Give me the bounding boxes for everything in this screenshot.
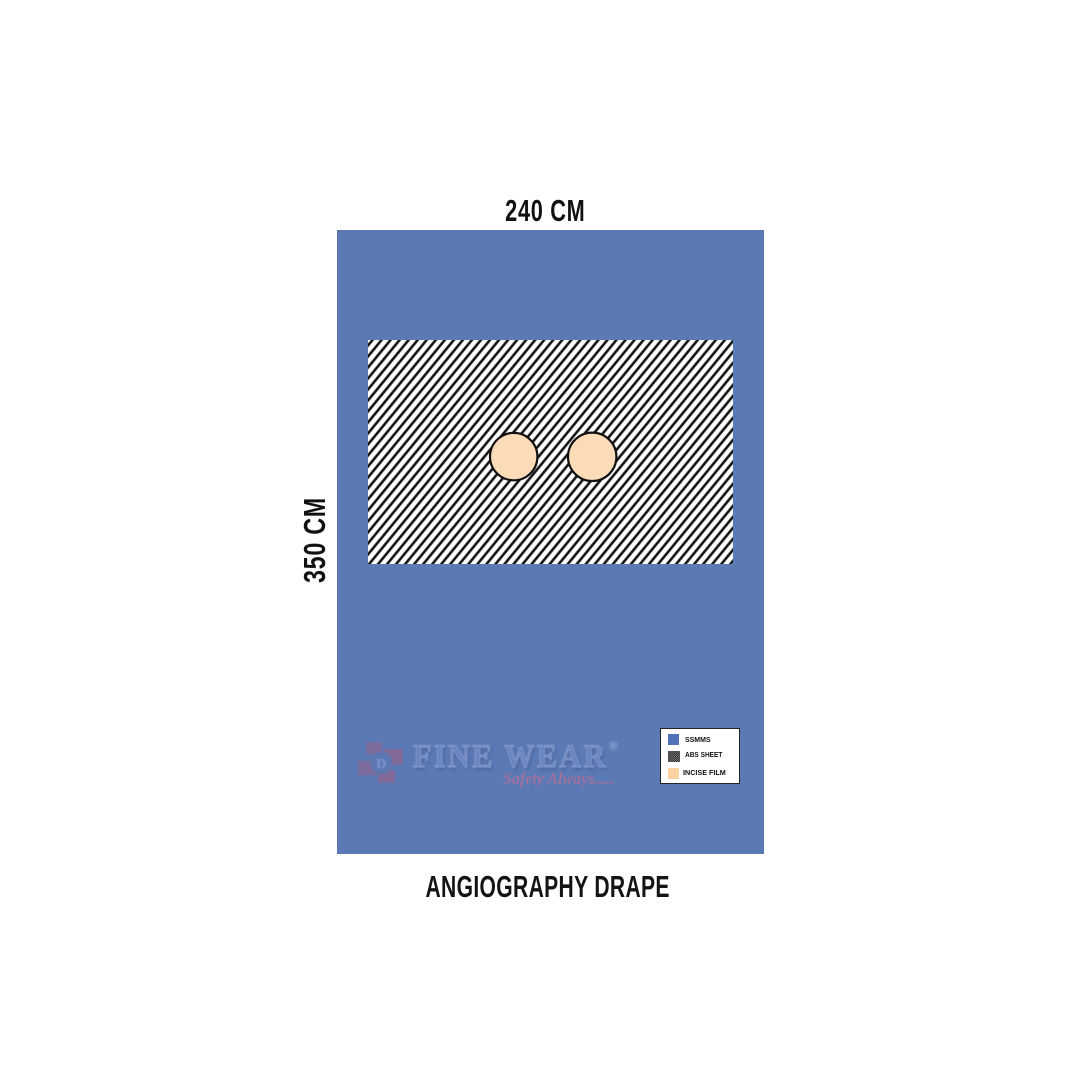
svg-text:D: D [376,757,386,772]
